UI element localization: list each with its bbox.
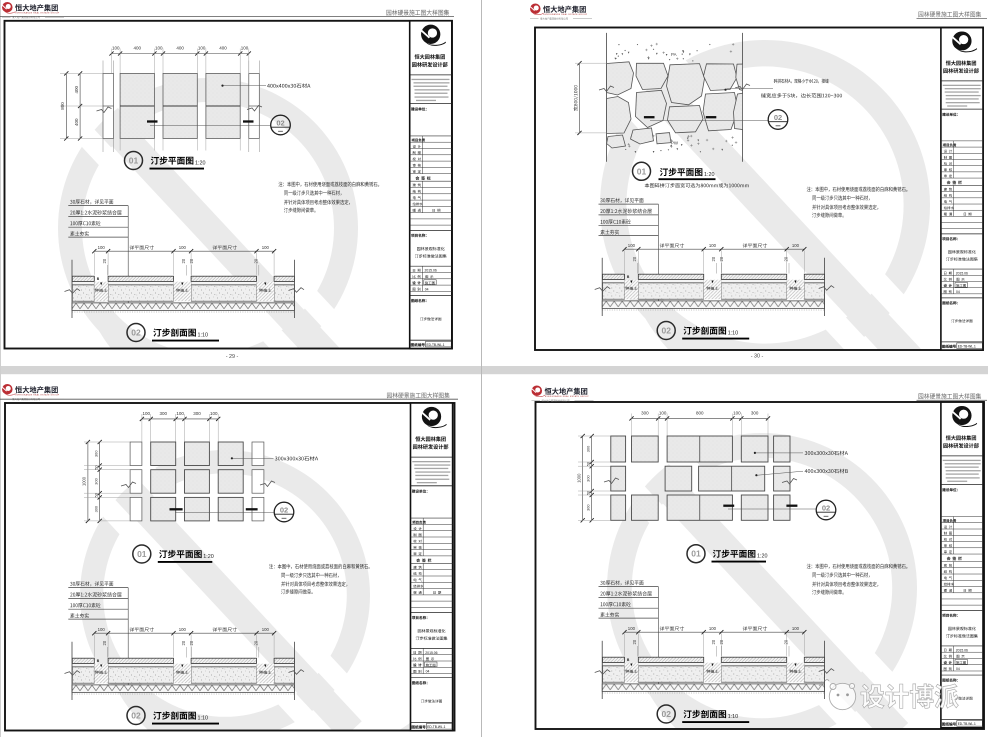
svg-text:1:20: 1:20 [195,160,206,166]
svg-text:1:10: 1:10 [198,332,209,338]
svg-text:1:20: 1:20 [704,172,715,178]
svg-text:- 30 -: - 30 - [751,354,764,360]
svg-text:1:10: 1:10 [728,714,739,720]
svg-text:1:10: 1:10 [198,715,209,721]
svg-text:1:20: 1:20 [203,554,214,560]
svg-text:1:10: 1:10 [728,330,739,336]
svg-text:1:20: 1:20 [757,554,768,560]
svg-text:- 29 -: - 29 - [226,354,239,360]
